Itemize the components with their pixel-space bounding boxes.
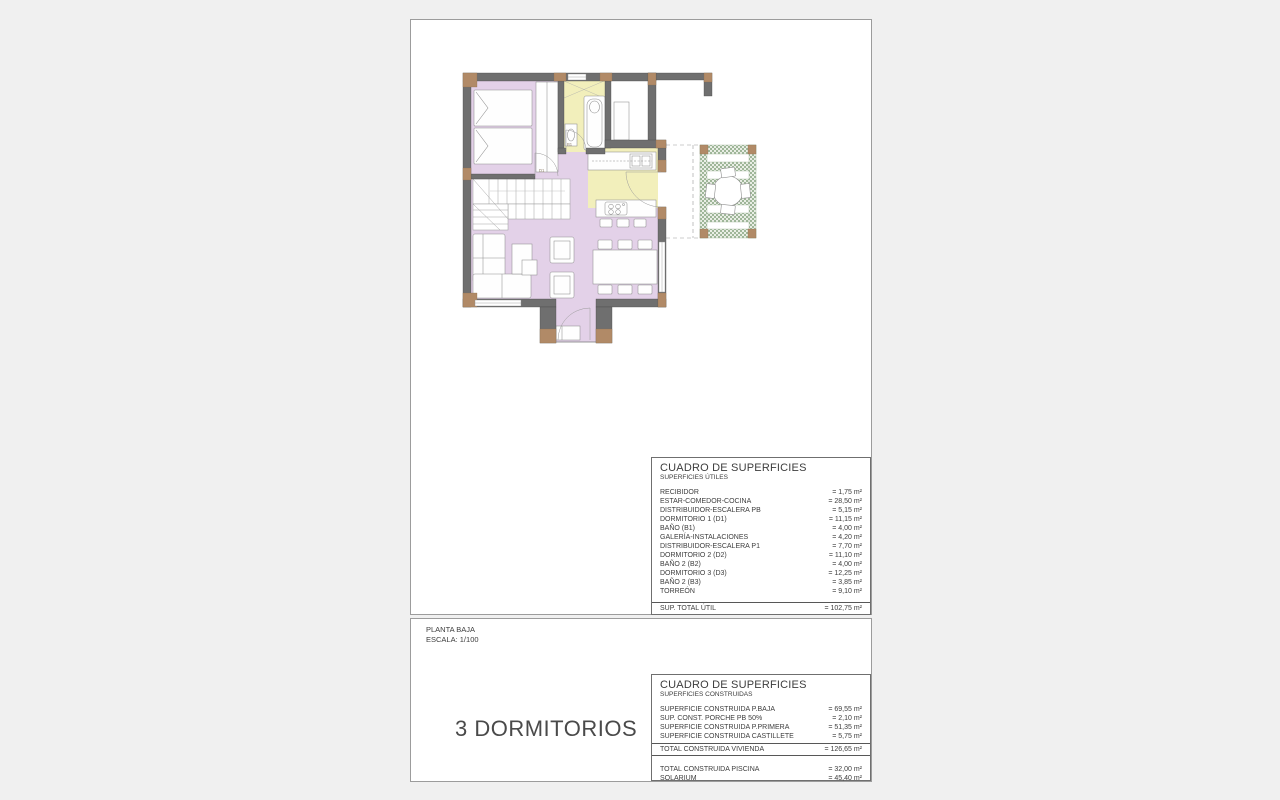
row-label: SUPERFICIE CONSTRUIDA CASTILLETE	[660, 732, 794, 741]
row-label: ESTAR-COMEDOR-COCINA	[660, 497, 751, 506]
row-label: BAÑO (B1)	[660, 524, 695, 533]
table-title: CUADRO DE SUPERFICIES	[652, 679, 870, 691]
table-title: CUADRO DE SUPERFICIES	[652, 462, 870, 474]
drawing-sheet-title: PLANTA BAJA ESCALA: 1/100 3 DORMITORIOS …	[410, 618, 872, 782]
total-value: = 126,65 m²	[824, 744, 862, 755]
total-value: = 102,75 m²	[824, 603, 862, 614]
total-label: TOTAL CONSTRUIDA VIVIENDA	[660, 744, 764, 755]
table-subtitle: SUPERFICIES CONSTRUIDAS	[652, 691, 870, 699]
row-label: SUPERFICIE CONSTRUIDA P.PRIMERA	[660, 723, 789, 732]
bedroom-door-label: D1	[539, 168, 545, 173]
row-label: SUPERFICIE CONSTRUIDA P.BAJA	[660, 705, 775, 714]
row-value: = 5,75 m²	[832, 732, 862, 741]
row-value: = 1,75 m²	[832, 488, 862, 497]
row-value: = 5,15 m²	[832, 506, 862, 515]
row-value: = 4,00 m²	[832, 524, 862, 533]
bed-icon	[474, 128, 532, 164]
window-icon	[568, 74, 586, 80]
table-row: TOTAL CONSTRUIDA PISCINA = 32,00 m²	[652, 765, 870, 774]
surface-table-utiles: CUADRO DE SUPERFICIES SUPERFICIES ÚTILES…	[651, 457, 871, 615]
row-value: = 3,85 m²	[832, 578, 862, 587]
row-label: BAÑO 2 (B2)	[660, 560, 701, 569]
row-label: DORMITORIO 1 (D1)	[660, 515, 727, 524]
drawing-sheet-plan: B1 D1 CUADRO DE SUPERFICIES SUPERFICIES …	[410, 19, 872, 615]
row-label: RECIBIDOR	[660, 488, 699, 497]
entry-step-icon	[556, 326, 580, 340]
title-block: PLANTA BAJA ESCALA: 1/100	[426, 625, 479, 645]
bed-icon	[474, 90, 532, 126]
row-label: DORMITORIO 2 (D2)	[660, 551, 727, 560]
table-row: DISTRIBUIDOR-ESCALERA PB = 5,15 m²	[652, 506, 870, 515]
table-row: DISTRIBUIDOR-ESCALERA P1 = 7,70 m²	[652, 542, 870, 551]
table-row: SUPERFICIE CONSTRUIDA P.PRIMERA = 51,35 …	[652, 723, 870, 732]
row-label: TORREÓN	[660, 587, 695, 596]
armchair-icon	[550, 272, 574, 298]
table-rows: RECIBIDOR = 1,75 m² ESTAR-COMEDOR-COCINA…	[652, 488, 870, 596]
row-value: = 7,70 m²	[832, 542, 862, 551]
row-value: = 4,20 m²	[832, 533, 862, 542]
table-subtitle: SUPERFICIES ÚTILES	[652, 474, 870, 482]
dining-table-icon	[593, 240, 657, 294]
table-extra-rows: TOTAL CONSTRUIDA PISCINA = 32,00 m² SOLA…	[652, 765, 870, 783]
table-row: TORREÓN = 9,10 m²	[652, 587, 870, 596]
window-icon	[659, 242, 665, 292]
row-value: = 4,00 m²	[832, 560, 862, 569]
row-label: GALERÍA-INSTALACIONES	[660, 533, 748, 542]
table-row: BAÑO (B1) = 4,00 m²	[652, 524, 870, 533]
row-label: SOLARIUM	[660, 774, 697, 783]
row-value: = 51,35 m²	[828, 723, 862, 732]
table-total-row: TOTAL CONSTRUIDA VIVIENDA = 126,65 m²	[652, 743, 870, 756]
table-row: BAÑO 2 (B2) = 4,00 m²	[652, 560, 870, 569]
table-row: DORMITORIO 3 (D3) = 12,25 m²	[652, 569, 870, 578]
row-label: DISTRIBUIDOR-ESCALERA P1	[660, 542, 760, 551]
outdoor-table-icon	[705, 167, 751, 215]
row-value: = 45,40 m²	[828, 774, 862, 783]
table-row: SUPERFICIE CONSTRUIDA CASTILLETE = 5,75 …	[652, 732, 870, 741]
plan-scale: ESCALA: 1/100	[426, 635, 479, 645]
table-row: DORMITORIO 2 (D2) = 11,10 m²	[652, 551, 870, 560]
utility-unit-icon	[614, 102, 629, 140]
row-value: = 32,00 m²	[828, 765, 862, 774]
plan-name: PLANTA BAJA	[426, 625, 479, 635]
surface-table-construidas: CUADRO DE SUPERFICIES SUPERFICIES CONSTR…	[651, 674, 871, 781]
bathtub-icon	[584, 96, 605, 150]
table-row: SOLARIUM = 45,40 m²	[652, 774, 870, 783]
table-row: ESTAR-COMEDOR-COCINA = 28,50 m²	[652, 497, 870, 506]
table-rows: SUPERFICIE CONSTRUIDA P.BAJA = 69,55 m² …	[652, 705, 870, 741]
table-row: SUP. CONST. PORCHE PB 50% = 2,10 m²	[652, 714, 870, 723]
total-label: SUP. TOTAL ÚTIL	[660, 603, 716, 614]
armchair-icon	[550, 237, 574, 263]
row-value: = 28,50 m²	[828, 497, 862, 506]
row-value: = 9,10 m²	[832, 587, 862, 596]
row-value: = 11,15 m²	[829, 515, 862, 524]
floor-plan-drawing: B1 D1	[450, 60, 780, 350]
table-row: RECIBIDOR = 1,75 m²	[652, 488, 870, 497]
bedrooms-caption: 3 DORMITORIOS	[455, 716, 637, 742]
row-label: BAÑO 2 (B3)	[660, 578, 701, 587]
kitchen-counter-icon	[588, 152, 656, 170]
table-total-row: SUP. TOTAL ÚTIL = 102,75 m²	[652, 602, 870, 614]
row-value: = 11,10 m²	[829, 551, 862, 560]
row-label: DORMITORIO 3 (D3)	[660, 569, 727, 578]
table-row: GALERÍA-INSTALACIONES = 4,20 m²	[652, 533, 870, 542]
table-row: SUPERFICIE CONSTRUIDA P.BAJA = 69,55 m²	[652, 705, 870, 714]
row-label: DISTRIBUIDOR-ESCALERA PB	[660, 506, 761, 515]
pergola	[666, 145, 756, 238]
wardrobe-icon	[536, 82, 558, 172]
row-label: SUP. CONST. PORCHE PB 50%	[660, 714, 762, 723]
table-row: BAÑO 2 (B3) = 3,85 m²	[652, 578, 870, 587]
bathroom-label: B1	[567, 142, 573, 147]
row-value: = 12,25 m²	[828, 569, 862, 578]
window-icon	[475, 300, 521, 306]
row-value: = 69,55 m²	[828, 705, 862, 714]
table-row: DORMITORIO 1 (D1) = 11,15 m²	[652, 515, 870, 524]
row-value: = 2,10 m²	[832, 714, 862, 723]
row-label: TOTAL CONSTRUIDA PISCINA	[660, 765, 759, 774]
page: B1 D1 CUADRO DE SUPERFICIES SUPERFICIES …	[0, 0, 1280, 800]
